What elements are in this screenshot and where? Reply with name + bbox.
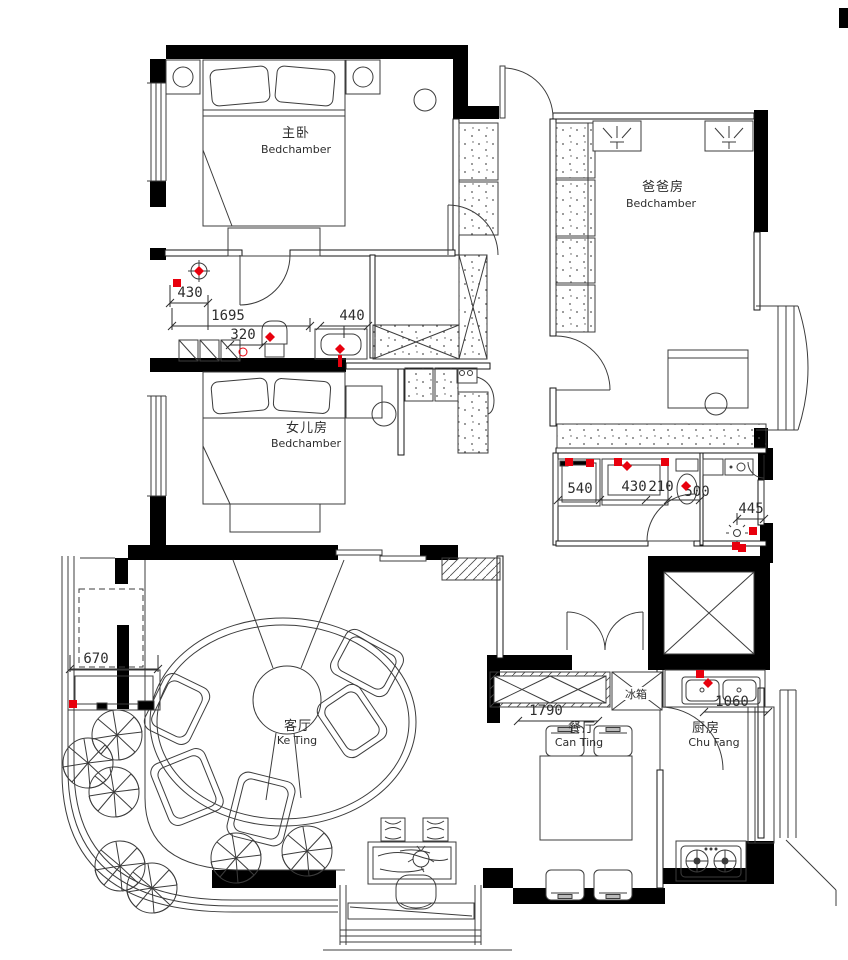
pillow [210,66,271,107]
svg-text:445: 445 [738,501,763,517]
master-bath-door [240,255,290,305]
toilet-tank [265,344,284,357]
svg-text:430: 430 [621,479,646,495]
dim-210: 210 [648,479,673,495]
nightstand [346,60,380,94]
light-projection-lines [233,560,344,800]
master-bedroom-label-zh: 主卧 [282,126,310,141]
daughter-bedroom-label-zh: 女儿房 [286,420,328,436]
plumbing-marker-icon [696,670,704,678]
svg-text:430: 430 [177,285,202,301]
plumbing-marker-icon [661,458,669,466]
entry-closet-2 [459,182,498,235]
living-room-furniture [141,560,416,848]
master-bedroom-furniture [166,60,436,256]
wood-cabinet [381,818,405,841]
dining-chair [594,870,632,900]
plumbing-marker-icon [738,544,746,552]
ceiling-vent-icon [705,121,753,151]
daughter-room-furniture [203,372,396,532]
dining-chair [546,870,584,900]
dining-sideboard [490,672,610,707]
floor-plan-sheet: 430 1695 320 440 540 430 210 500 445 670… [0,0,848,960]
lamp-icon [372,402,396,426]
stool-icon [705,393,727,415]
kitchen-label-en: Chu Fang [688,736,739,749]
floor-plan: 430 1695 320 440 540 430 210 500 445 670… [0,0,848,960]
svg-text:670: 670 [83,651,108,667]
master-bedroom-label-en: Bedchamber [261,143,332,156]
plumbing-marker-icon [565,458,573,466]
dim-540: 540 [567,481,592,497]
dining-room-label-en: Can Ting [555,736,603,749]
nightstand [346,386,382,418]
sofa-seat [313,680,390,761]
nook-cabinet-1 [405,368,433,401]
svg-text:320: 320 [230,327,255,343]
hall-closet-3 [556,238,595,283]
plumbing-marker-icon [614,458,622,466]
dim-430a: 430 [166,285,212,330]
living-room-label-zh: 客厅 [284,718,312,734]
fridge-label: 冰箱 [625,687,647,701]
windows [62,83,836,950]
balcony-inner-edge [145,560,345,870]
tv-desk-area [368,818,456,909]
plumbing-marker-icon [194,266,204,276]
svg-text:1695: 1695 [211,308,245,324]
sofa-seat [327,626,407,700]
hall-closet-2 [556,180,595,236]
entry-door [500,66,553,118]
dining-table [540,756,632,840]
wood-desk [368,842,456,884]
nightstand [166,60,200,94]
entry-closet-1 [459,123,498,180]
window-daughter-left [147,396,166,496]
living-entry-cabinet [442,558,500,580]
desk [668,350,748,408]
dad-bedroom-label-zh: 爸爸房 [642,179,684,195]
hall-closet-4 [556,285,595,332]
daughter-bedroom-label-en: Bedchamber [271,437,342,450]
wood-cabinet [423,818,448,841]
dim-320: 320 [226,327,267,349]
toilet-icon [262,321,287,344]
svg-text:540: 540 [567,481,592,497]
chaise-seat [148,746,227,829]
pillow [275,66,336,107]
bath2-door [647,494,694,541]
plant-icon [282,826,332,876]
lamp-icon [353,67,373,87]
pillow [273,378,331,414]
plumbing-marker-icon [69,700,77,708]
dad-room-wardrobe [557,424,766,448]
living-sliding-door [336,550,426,561]
plumbing-marker-icon [335,344,345,354]
bed-bench [230,504,320,532]
svg-text:1790: 1790 [529,703,563,719]
balcony-cabinet [68,670,160,710]
window-kitchen-right [780,690,836,906]
plumbing-marker-icon [749,527,757,535]
ceiling-vent-icon [593,121,641,151]
clipped-drawing-fragment [839,8,848,28]
dad-room-furniture [593,121,753,415]
kitchen-label-zh: 厨房 [692,720,720,736]
plumbing-marker-icon [173,279,181,287]
hall-closet-1 [556,123,595,178]
plumbing-marker-icon [586,459,594,467]
bathroom2-fixtures [558,459,753,544]
bay-window-dad-room [756,306,808,430]
lamp-icon [173,67,193,87]
hall-double-door [567,612,643,650]
nook-cabinet-3 [458,392,488,453]
plant-icon [92,710,142,760]
plant-icon [89,767,139,817]
plant-icon [63,738,113,788]
nook-cabinet-2 [435,368,458,401]
dim-430b: 430 [621,479,646,495]
svg-text:1060: 1060 [715,694,749,710]
dining-room-label-zh: 餐厅 [568,720,596,736]
window-master-left [147,83,166,181]
pillow [211,378,270,415]
living-room-label-en: Ke Ting [277,734,317,747]
dim-440: 440 [316,308,372,338]
shower-shelf [703,459,723,475]
elevator-shaft [648,556,770,670]
svg-text:440: 440 [339,308,364,324]
plumbing-marker-icon [622,461,632,471]
dad-room-door [556,336,610,390]
ceiling-lamp-icon [414,89,436,111]
dad-bedroom-label-en: Bedchamber [626,197,697,210]
svg-text:210: 210 [648,479,673,495]
plumbing-marker-icon [265,332,275,342]
